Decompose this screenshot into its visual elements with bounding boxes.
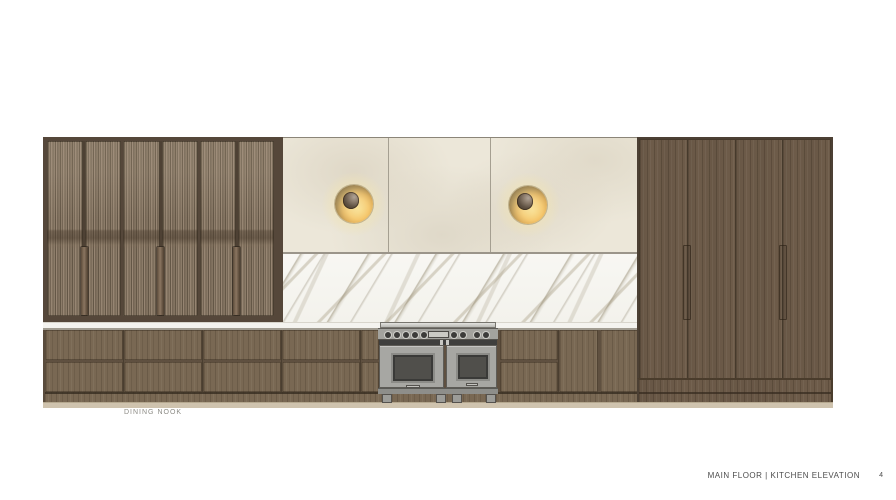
drawer-front (500, 362, 558, 392)
range-foot (452, 394, 462, 403)
drawer-front (45, 330, 123, 360)
marble-backsplash (283, 254, 637, 322)
pantry-door (736, 140, 783, 378)
range-knob-icon (460, 332, 466, 338)
drawer-front (361, 330, 379, 360)
oven-door-left (379, 345, 444, 388)
range-knob-icon (412, 332, 418, 338)
sconce-center (517, 193, 534, 210)
reeded-glass-door (47, 141, 83, 316)
wood-door-pull (233, 247, 240, 315)
base-cabinets (43, 330, 637, 402)
reeded-glass-door (200, 141, 236, 316)
reeded-glass-door (123, 141, 159, 316)
wall-sconce-icon (335, 185, 373, 223)
drawer-bay (282, 330, 361, 392)
drawer-bay (45, 330, 124, 392)
pantry-base-rail (637, 378, 833, 402)
sconce-center (343, 192, 360, 209)
kitchen-elevation-drawing (43, 137, 833, 408)
oven-window (391, 353, 435, 383)
reeded-glass-door (85, 141, 121, 316)
drawer-front (282, 362, 360, 392)
range-knob-icon (474, 332, 480, 338)
oven-door-right (446, 345, 497, 388)
range-knob-icon (451, 332, 457, 338)
range-knob-icon (483, 332, 489, 338)
pantry-door (688, 140, 735, 378)
wood-door-pull (157, 247, 164, 315)
pantry-door (783, 140, 830, 378)
drawer-bay (124, 330, 203, 392)
range-foot (436, 394, 446, 403)
footer-page-number: 4 (879, 472, 883, 479)
drawer-front (124, 330, 202, 360)
range-knob-icon (403, 332, 409, 338)
wood-door-pull (81, 247, 88, 315)
base-door (559, 330, 598, 392)
range-foot (382, 394, 392, 403)
pantry-door (640, 140, 687, 378)
panel-divider (388, 138, 389, 252)
drawer-front (124, 362, 202, 392)
drawer-front (361, 362, 379, 392)
glass-door-pair (123, 141, 197, 316)
drawer-front (500, 330, 558, 360)
range-display (428, 331, 449, 338)
plinth (45, 392, 637, 402)
drawer-front (282, 330, 360, 360)
range-control-panel (378, 328, 498, 340)
recessed-pull (779, 245, 787, 320)
base-door-pair (559, 330, 639, 392)
range-foot (486, 394, 496, 403)
oven-window (456, 353, 490, 381)
glass-door-pair (47, 141, 121, 316)
drawer-bay (500, 330, 559, 392)
dining-nook-label: DINING NOOK (124, 409, 182, 416)
countertop (43, 322, 637, 330)
presentation-page: DINING NOOK MAIN FLOOR | KITCHEN ELEVATI… (0, 0, 896, 500)
glass-door-pair (200, 141, 274, 316)
reeded-glass-door (162, 141, 198, 316)
footer-title: MAIN FLOOR | KITCHEN ELEVATION (0, 471, 860, 480)
drawer-front (45, 362, 123, 392)
base-groove (639, 392, 831, 394)
reeded-glass-door (238, 141, 274, 316)
recessed-pull (683, 245, 691, 320)
range (378, 322, 498, 403)
oven-latch (466, 383, 478, 386)
tall-pantry-cabinet (637, 137, 833, 378)
panel-divider (490, 138, 491, 252)
left-glass-cabinet (43, 137, 283, 322)
base-door (600, 330, 639, 392)
range-knob-icon (385, 332, 391, 338)
wall-sconce-icon (509, 186, 547, 224)
range-knob-icon (421, 332, 427, 338)
range-knob-icon (394, 332, 400, 338)
drawer-front (203, 330, 281, 360)
drawer-front (203, 362, 281, 392)
drawer-bay (203, 330, 282, 392)
